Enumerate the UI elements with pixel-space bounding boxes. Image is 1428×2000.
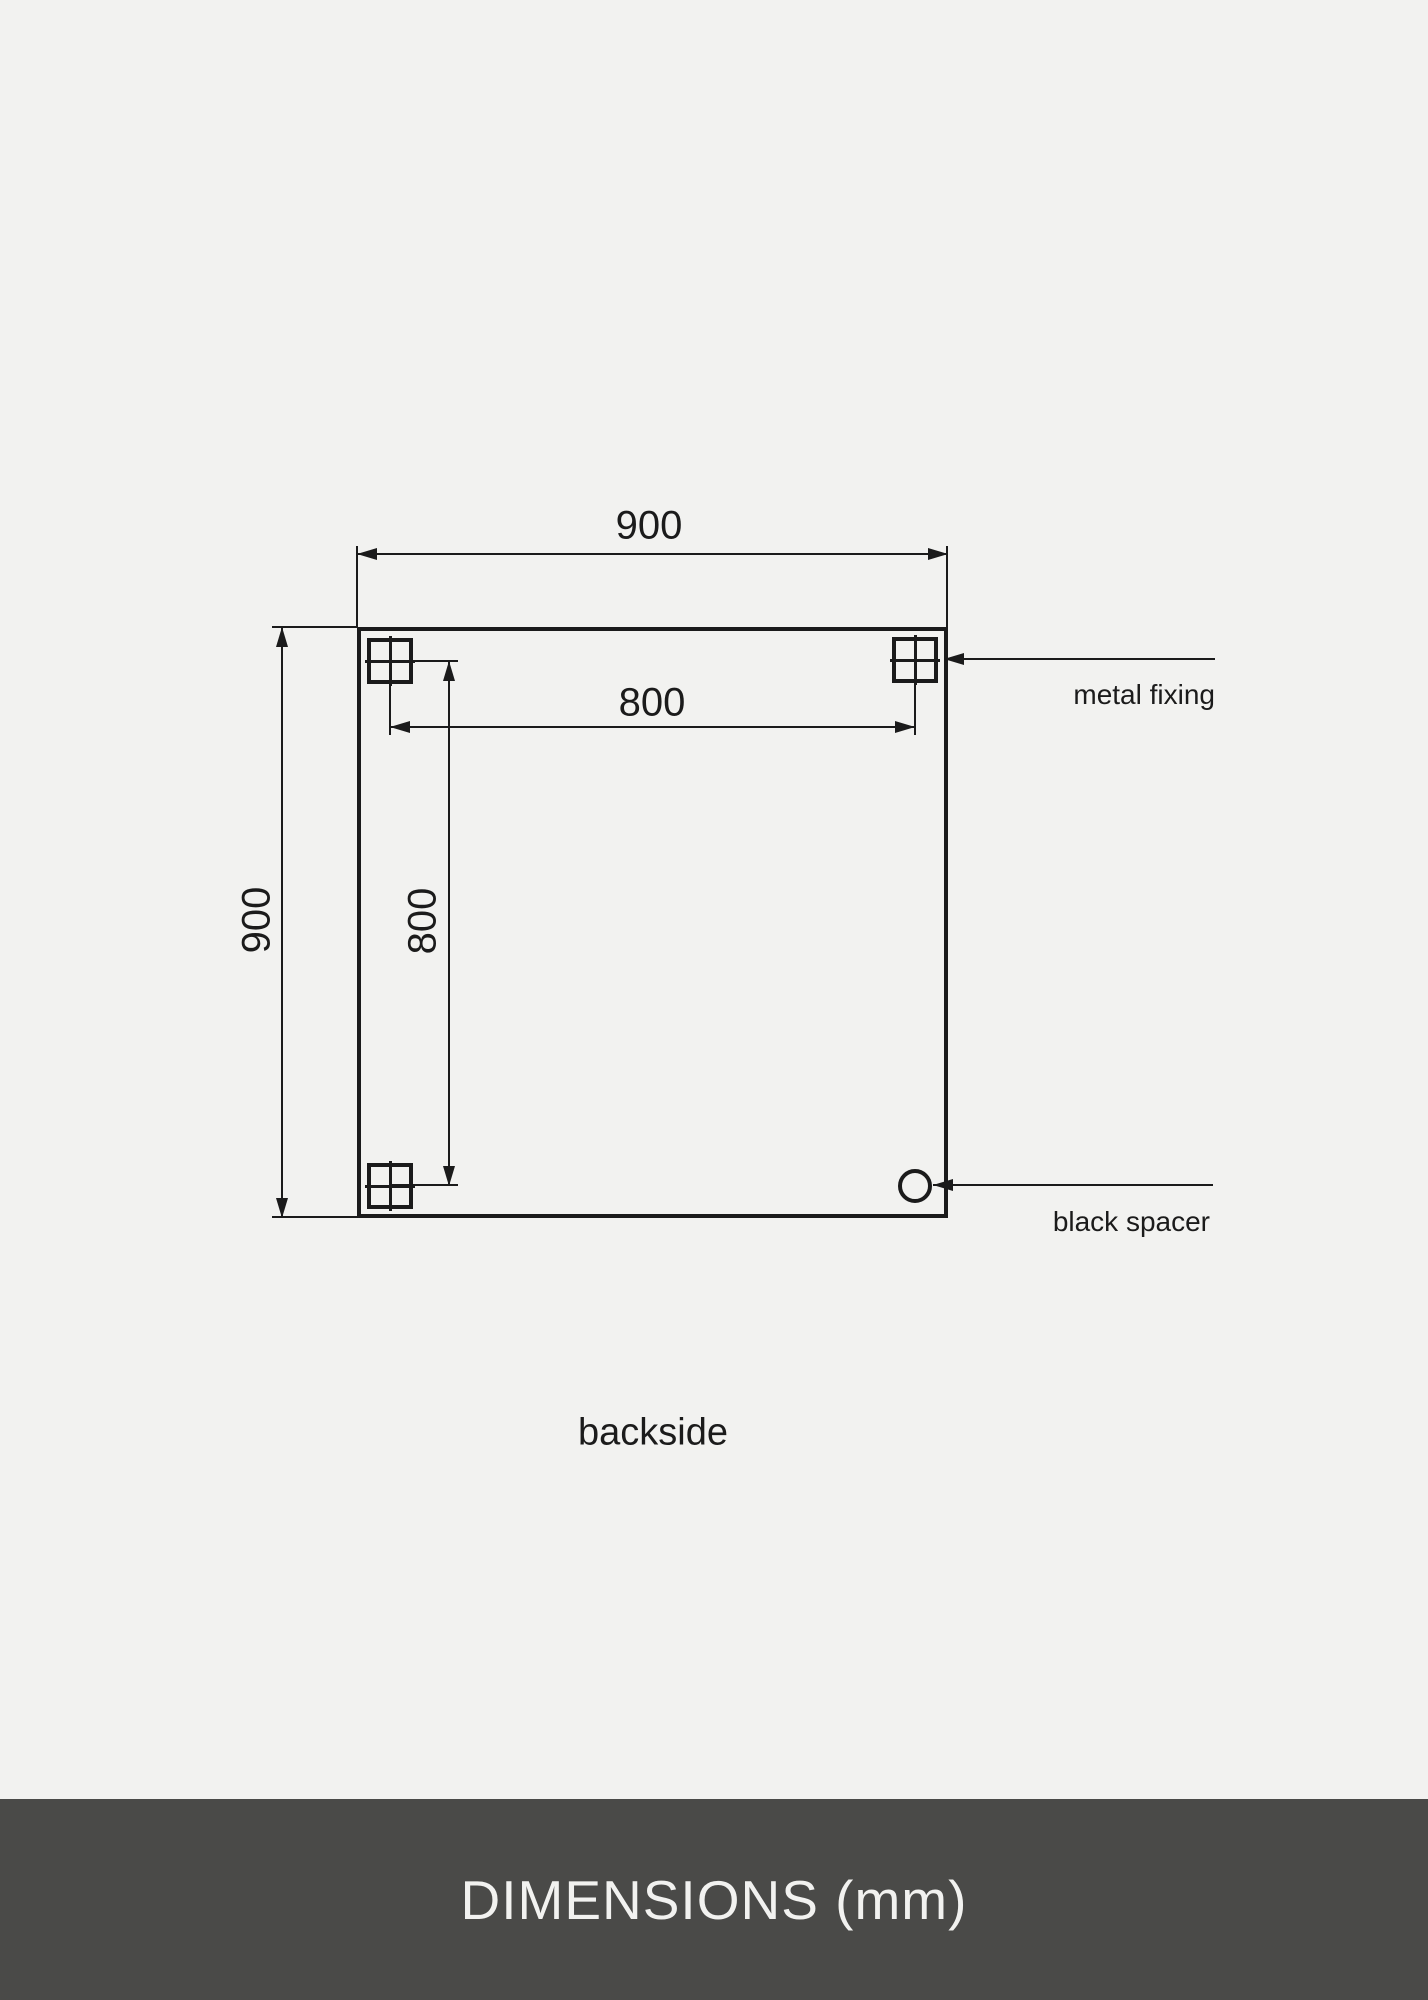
black-spacer-callout-arrow-icon: [933, 1179, 953, 1191]
dim-overall-width-extension-left: [356, 546, 358, 627]
dim-overall-width-line: [357, 553, 948, 555]
dim-overall-height-extension-top: [272, 626, 357, 628]
dim-fixing-span-h-extension-right: [914, 660, 916, 735]
dim-overall-height-extension-bottom: [272, 1216, 357, 1218]
metal-fixing-icon-bottom-left: [367, 1163, 413, 1209]
dim-overall-height-arrow-bottom-icon: [276, 1198, 288, 1218]
dim-fixing-span-v-line: [448, 661, 450, 1186]
dim-overall-height-arrow-top-icon: [276, 627, 288, 647]
metal-fixing-label: metal fixing: [1073, 679, 1215, 711]
dim-fixing-span-v-extension-top: [390, 660, 458, 662]
black-spacer-label: black spacer: [1053, 1206, 1210, 1238]
black-spacer-callout-line: [933, 1184, 1213, 1186]
page-title: DIMENSIONS (mm): [461, 1868, 968, 1932]
dim-fixing-span-v-arrow-top-icon: [443, 661, 455, 681]
dim-overall-height-value: 900: [235, 887, 280, 954]
black-spacer-icon: [898, 1169, 932, 1203]
metal-fixing-callout-line: [944, 658, 1215, 660]
technical-drawing-page: 900 900 800 800 metal fixing black space…: [0, 0, 1428, 2000]
footer-bar: DIMENSIONS (mm): [0, 1799, 1428, 2000]
dim-overall-height-line: [281, 627, 283, 1218]
metal-fixing-callout-arrow-icon: [944, 653, 964, 665]
dim-fixing-span-h-value: 800: [619, 681, 686, 726]
dim-fixing-span-v-arrow-bottom-icon: [443, 1166, 455, 1186]
dim-overall-width-arrow-left-icon: [357, 548, 377, 560]
dim-overall-width-extension-right: [946, 546, 948, 628]
dim-fixing-span-v-value: 800: [401, 888, 446, 955]
dim-fixing-span-h-arrow-left-icon: [390, 721, 410, 733]
dim-overall-width-value: 900: [616, 504, 683, 549]
dim-overall-width-arrow-right-icon: [928, 548, 948, 560]
dim-fixing-span-h-extension-left: [389, 661, 391, 735]
dim-fixing-span-v-extension-bottom: [390, 1184, 458, 1186]
view-label: backside: [578, 1412, 728, 1455]
dim-fixing-span-h-arrow-right-icon: [895, 721, 915, 733]
dim-fixing-span-h-line: [390, 726, 915, 728]
